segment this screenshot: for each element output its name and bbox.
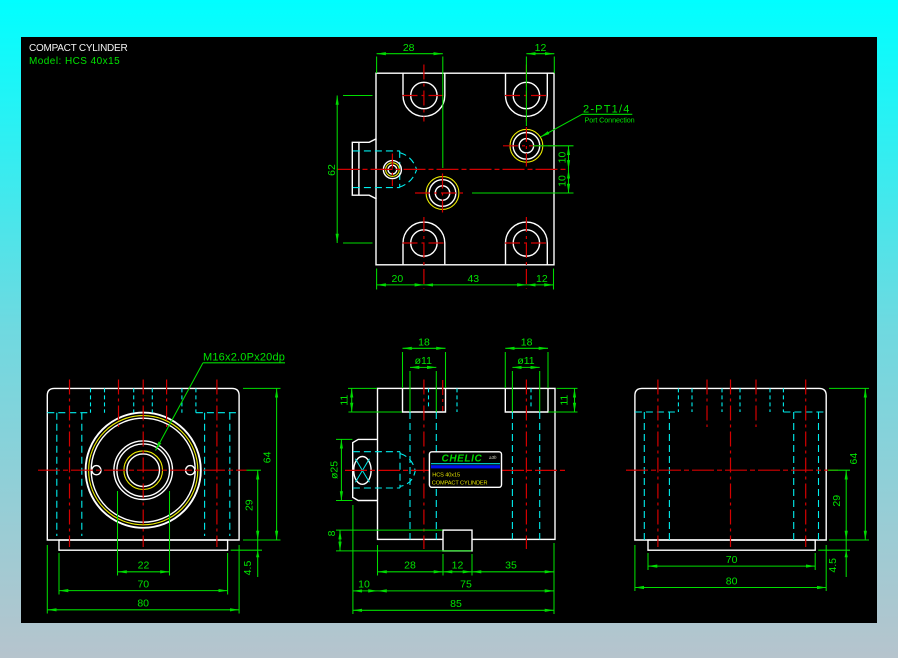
svg-text:85: 85 — [450, 598, 462, 610]
svg-text:12: 12 — [535, 42, 547, 54]
svg-text:12: 12 — [452, 560, 464, 572]
svg-text:8: 8 — [326, 530, 338, 536]
svg-text:80: 80 — [726, 575, 738, 587]
svg-text:80: 80 — [137, 598, 149, 610]
svg-text:70: 70 — [726, 554, 738, 566]
svg-text:10: 10 — [358, 579, 370, 591]
svg-text:Port Connection: Port Connection — [585, 116, 635, 125]
svg-text:18: 18 — [418, 336, 430, 348]
svg-text:10: 10 — [556, 152, 568, 164]
svg-text:4.5: 4.5 — [827, 558, 839, 573]
svg-text:ø11: ø11 — [415, 355, 432, 367]
svg-text:43: 43 — [467, 273, 479, 285]
svg-text:4.5: 4.5 — [242, 561, 254, 576]
svg-text:COMPACT CYLINDER: COMPACT CYLINDER — [29, 43, 127, 54]
svg-text:ø25: ø25 — [329, 461, 341, 479]
svg-text:Model: HCS 40x15: Model: HCS 40x15 — [29, 56, 120, 67]
svg-text:11: 11 — [338, 395, 350, 406]
svg-text:29: 29 — [831, 495, 843, 507]
svg-text:75: 75 — [460, 579, 472, 591]
svg-text:a3h: a3h — [489, 455, 497, 460]
svg-text:29: 29 — [243, 499, 255, 511]
svg-text:12: 12 — [536, 273, 548, 285]
svg-text:70: 70 — [137, 578, 149, 590]
svg-text:64: 64 — [848, 453, 860, 465]
svg-text:64: 64 — [262, 451, 274, 463]
svg-text:HCS 40x15: HCS 40x15 — [432, 472, 460, 478]
svg-text:35: 35 — [505, 560, 517, 572]
svg-text:11: 11 — [558, 395, 570, 406]
svg-text:M16x2.0Px20dp: M16x2.0Px20dp — [203, 351, 285, 363]
svg-text:28: 28 — [404, 560, 416, 572]
svg-text:CHELIC: CHELIC — [442, 454, 483, 465]
svg-text:10: 10 — [556, 175, 568, 187]
svg-text:22: 22 — [138, 560, 150, 572]
svg-text:ø11: ø11 — [517, 355, 534, 367]
svg-text:62: 62 — [326, 164, 338, 176]
svg-text:2-PT1/4: 2-PT1/4 — [583, 104, 631, 116]
svg-text:18: 18 — [521, 336, 533, 348]
svg-text:28: 28 — [403, 42, 415, 54]
svg-text:COMPACT CYLINDER: COMPACT CYLINDER — [432, 481, 488, 487]
svg-text:20: 20 — [392, 273, 404, 285]
